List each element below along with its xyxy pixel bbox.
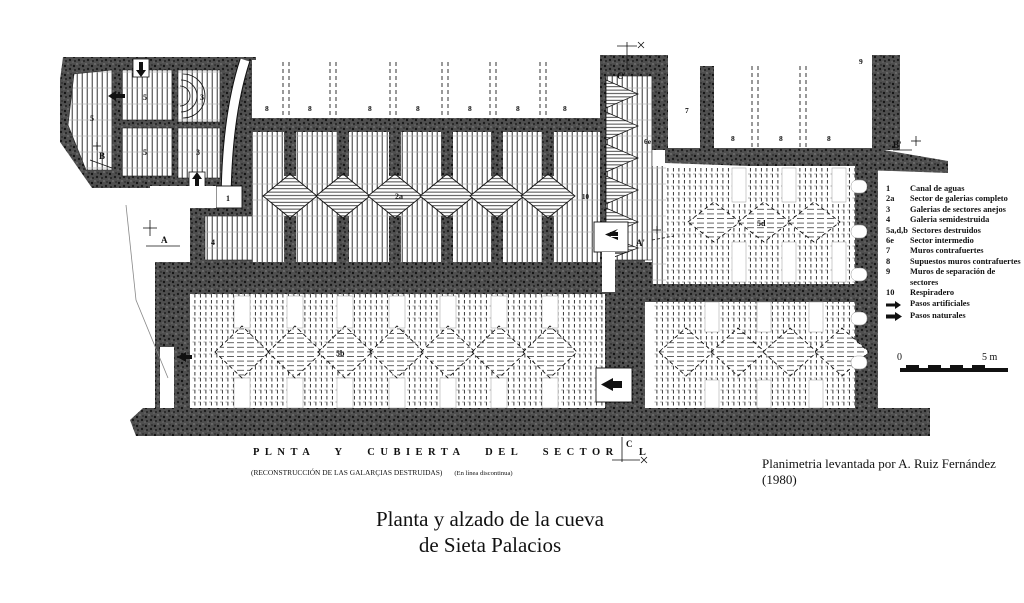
legend-item: 2aSector de galerias completo xyxy=(886,194,1022,204)
plan-caption: PLNTA Y CUBIERTA DEL SECTOR L xyxy=(253,447,651,458)
legend-label: Galerias de sectores anejos xyxy=(910,205,1006,215)
label-muro8: 8 xyxy=(731,134,735,143)
marker-c-prime: C' xyxy=(617,71,626,81)
legend-item: 4Galeria semidestruida xyxy=(886,215,1022,225)
legend-key: 5a,d,b xyxy=(886,226,908,236)
legend-label: Pasos naturales xyxy=(910,311,966,321)
label-sector5b: 5b xyxy=(336,349,345,358)
legend-label: Respiradero xyxy=(910,288,954,298)
label-sector6e: 6e xyxy=(644,137,652,146)
legend-key: 1 xyxy=(886,184,906,194)
title-line1: Planta y alzado de la cueva xyxy=(310,506,670,532)
plan-sheet: 5 5 5 3 3 1 4 xyxy=(0,0,1024,603)
label-canal: 1 xyxy=(226,194,230,203)
label-muro8: 8 xyxy=(516,104,520,113)
legend: 1Canal de aguas 2aSector de galerias com… xyxy=(886,184,1022,321)
legend-label: Sector de galerias completo xyxy=(910,194,1008,204)
label-muro9: 9 xyxy=(859,57,863,66)
legend-key: 2a xyxy=(886,194,906,204)
legend-item: 3Galerias de sectores anejos xyxy=(886,205,1022,215)
label-muro8: 8 xyxy=(416,104,420,113)
legend-item: 9Muros de separación de sectores xyxy=(886,267,1022,288)
title-line2: de Sieta Palacios xyxy=(310,532,670,558)
label-galeria3: 3 xyxy=(196,148,200,157)
legend-key: 6e xyxy=(886,236,906,246)
legend-item: 7Muros contrafuertes xyxy=(886,246,1022,256)
upper-gallery-2a: 2a 10 xyxy=(252,132,600,262)
label-muro8: 8 xyxy=(368,104,372,113)
lower-gallery-5b: 5b xyxy=(160,294,605,408)
label-sector5: 5 xyxy=(143,148,147,157)
label-sector5: 5 xyxy=(143,93,147,102)
marker-a: A xyxy=(161,235,168,245)
legend-key: 9 xyxy=(886,267,906,288)
legend-key: 8 xyxy=(886,257,906,267)
legend-label: Muros de separación de sectores xyxy=(910,267,1022,288)
dashed-note: (En línea discontinua) xyxy=(454,470,512,477)
reconstruction-note: (RECONSTRUCCIÓN DE LAS GALARÇIAS DESTRUI… xyxy=(251,468,442,477)
legend-label: Sectores destruidos xyxy=(912,226,981,236)
legend-item-passage: Pasos naturales xyxy=(886,311,1022,321)
marker-b-prime: B' xyxy=(893,140,902,150)
scale-five-label: 5 m xyxy=(982,352,997,363)
legend-item: 10Respiradero xyxy=(886,288,1022,298)
right-lower-gallery xyxy=(652,302,869,408)
legend-label: Galeria semidestruida xyxy=(910,215,989,225)
label-muro8: 8 xyxy=(563,104,567,113)
label-sector2a: 2a xyxy=(395,192,403,201)
label-galeria3: 3 xyxy=(200,93,204,102)
right-top-rooms: 7 8 8 8 9 xyxy=(668,57,872,148)
legend-key: 7 xyxy=(886,246,906,256)
plan-subcaption: (RECONSTRUCCIÓN DE LAS GALARÇIAS DESTRUI… xyxy=(251,468,513,477)
label-muro8: 8 xyxy=(779,134,783,143)
label-muro8: 8 xyxy=(468,104,472,113)
legend-label: Sector intermedio xyxy=(910,236,974,246)
legend-item: 8Supuestos muros contrafuertes xyxy=(886,257,1022,267)
legend-key: 4 xyxy=(886,215,906,225)
legend-item: 6eSector intermedio xyxy=(886,236,1022,246)
legend-item-passage: Pasos artificiales xyxy=(886,299,1022,309)
legend-label: Muros contrafuertes xyxy=(910,246,984,256)
legend-key: 10 xyxy=(886,288,906,298)
attribution-line: Planimetria levantada por A. Ruiz Fernán… xyxy=(762,456,1024,488)
legend-key: 3 xyxy=(886,205,906,215)
label-muro8: 8 xyxy=(308,104,312,113)
label-muro8: 8 xyxy=(827,134,831,143)
label-muro7: 7 xyxy=(685,106,689,115)
label-sector5: 5 xyxy=(90,114,94,123)
main-title: Planta y alzado de la cueva de Sieta Pal… xyxy=(310,506,670,558)
label-sector5d: 5d xyxy=(757,219,766,228)
legend-label: Pasos artificiales xyxy=(910,299,970,309)
scale-bar xyxy=(900,365,1008,372)
scale-zero-label: 0 xyxy=(897,352,902,363)
paso-natural-arrow-icon xyxy=(886,312,906,321)
label-galeria4: 4 xyxy=(211,238,215,247)
marker-b: B xyxy=(99,151,105,161)
label-muro8: 8 xyxy=(265,104,269,113)
label-respiradero: 10 xyxy=(582,193,590,201)
paso-artificial-arrow-icon xyxy=(886,301,906,309)
legend-label: Supuestos muros contrafuertes xyxy=(910,257,1021,267)
legend-item: 5a,d,bSectores destruidos xyxy=(886,226,1022,236)
right-middle-gallery: 5d xyxy=(652,166,855,284)
top-band-central: 8 8 8 8 8 8 8 xyxy=(252,60,600,118)
legend-label: Canal de aguas xyxy=(910,184,964,194)
marker-a-prime: A' xyxy=(636,238,645,248)
legend-item: 1Canal de aguas xyxy=(886,184,1022,194)
